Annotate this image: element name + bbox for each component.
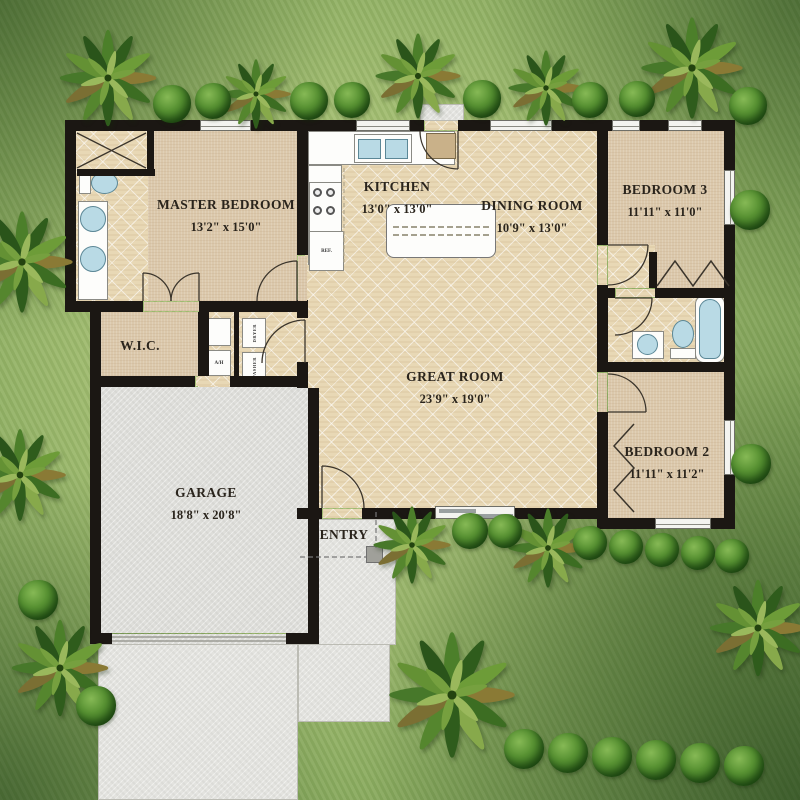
- window-icon: [668, 120, 702, 131]
- wall-segment: [147, 131, 154, 176]
- door-opening: [144, 302, 199, 311]
- wall-segment: [198, 312, 209, 376]
- wall-segment: [297, 508, 322, 519]
- bush-icon: [334, 82, 370, 118]
- palm-tree-icon: [0, 428, 68, 523]
- burner: [313, 188, 322, 197]
- room-dims: 13'2" x 15'0": [157, 216, 295, 238]
- wall-segment: [724, 475, 735, 529]
- wall-segment: [640, 120, 668, 131]
- bush-icon: [573, 526, 607, 560]
- wall-segment: [234, 312, 239, 376]
- wall-segment: [597, 298, 608, 372]
- garage-door-opening: [112, 634, 286, 644]
- bush-icon: [76, 686, 116, 726]
- bush-icon: [195, 83, 231, 119]
- entry-mat: [426, 133, 456, 159]
- wall-segment: [597, 288, 615, 298]
- bush-icon: [463, 80, 501, 118]
- wall-segment: [655, 288, 735, 298]
- utility-box: [207, 318, 231, 346]
- door-opening: [616, 289, 655, 297]
- room-dims: 13'0" x 13'0": [362, 198, 433, 220]
- air-handler-label: A/H: [215, 361, 224, 366]
- bush-icon: [592, 737, 632, 777]
- door-opening: [598, 246, 607, 285]
- palm-tree-icon: [220, 58, 292, 130]
- sink-basin: [385, 139, 408, 159]
- vanity-sink-icon: [80, 246, 106, 272]
- vanity-sink-icon: [80, 206, 106, 232]
- driveway: [98, 644, 298, 800]
- door-opening: [196, 377, 230, 386]
- bush-icon: [18, 580, 58, 620]
- wall-segment: [297, 120, 308, 255]
- palm-tree-icon: [0, 210, 75, 315]
- door-opening: [323, 509, 362, 518]
- bush-icon: [619, 81, 655, 117]
- refrigerator-icon: REF.: [309, 231, 344, 271]
- site-plan: REF. DW A/H DRYER WASHER: [0, 0, 800, 800]
- palm-tree-icon: [708, 578, 800, 678]
- bush-icon: [548, 733, 588, 773]
- bush-icon: [452, 513, 488, 549]
- door-opening: [598, 373, 607, 412]
- room-name: KITCHEN: [362, 176, 433, 198]
- wall-segment: [597, 362, 735, 372]
- palm-tree-icon: [372, 505, 452, 585]
- door-opening: [298, 256, 307, 301]
- wall-segment: [597, 412, 608, 529]
- garage-label: GARAGE 18'8" x 20'8": [171, 482, 242, 526]
- window-icon: [612, 120, 640, 131]
- room-name: BEDROOM 2: [625, 441, 710, 463]
- wall-segment: [724, 120, 735, 170]
- burner: [313, 206, 322, 215]
- wall-segment: [77, 169, 155, 176]
- wall-segment: [597, 518, 655, 529]
- entry-label: ENTRY: [320, 524, 369, 546]
- bedroom2-label: BEDROOM 2 11'11" x 11'2": [625, 441, 710, 485]
- room-name: DINING ROOM: [481, 195, 583, 217]
- bush-icon: [729, 87, 767, 125]
- bush-icon: [680, 743, 720, 783]
- burner: [326, 206, 335, 215]
- wall-segment: [297, 300, 308, 318]
- wall-segment: [90, 387, 101, 644]
- wall-segment: [199, 301, 297, 312]
- wall-segment: [649, 252, 657, 288]
- air-handler: A/H: [207, 350, 231, 376]
- bush-icon: [488, 514, 522, 548]
- bush-icon: [681, 536, 715, 570]
- room-name: GARAGE: [171, 482, 242, 504]
- bedroom3-label: BEDROOM 3 11'11" x 11'0": [623, 179, 708, 223]
- bush-icon: [731, 444, 771, 484]
- wic-label: W.I.C.: [120, 335, 160, 357]
- wall-segment: [724, 225, 735, 420]
- bush-icon: [645, 533, 679, 567]
- palm-tree-icon: [374, 32, 462, 120]
- wall-segment: [90, 376, 195, 387]
- kitchen-label: KITCHEN 13'0" x 13'0": [362, 176, 433, 220]
- room-name: GREAT ROOM: [406, 366, 504, 388]
- bush-icon: [730, 190, 770, 230]
- wall-segment: [65, 301, 143, 312]
- master-bedroom-label: MASTER BEDROOM 13'2" x 15'0": [157, 194, 295, 238]
- wall-segment: [597, 120, 608, 245]
- room-dims: 10'9" x 13'0": [481, 217, 583, 239]
- room-name: MASTER BEDROOM: [157, 194, 295, 216]
- bush-icon: [724, 746, 764, 786]
- bush-icon: [504, 729, 544, 769]
- burner: [326, 188, 335, 197]
- room-name: BEDROOM 3: [623, 179, 708, 201]
- room-name: ENTRY: [320, 524, 369, 546]
- wall-segment: [410, 120, 424, 131]
- palm-tree-icon: [387, 630, 517, 760]
- dryer-icon: DRYER: [242, 318, 266, 348]
- room-dims: 11'11" x 11'0": [623, 201, 708, 223]
- great-room-label: GREAT ROOM 23'9" x 19'0": [406, 366, 504, 410]
- window-icon: [356, 120, 410, 131]
- wall-segment: [458, 120, 490, 131]
- door-opening: [425, 121, 458, 130]
- great-room-floor: [305, 131, 597, 508]
- bush-icon: [636, 740, 676, 780]
- bush-icon: [572, 82, 608, 118]
- vanity-sink-icon: [637, 334, 658, 355]
- window-icon: [655, 518, 711, 529]
- dryer-label: DRYER: [252, 324, 257, 342]
- bush-icon: [290, 82, 328, 120]
- wall-segment: [286, 633, 319, 644]
- walkway: [298, 644, 390, 722]
- dining-room-label: DINING ROOM 10'9" x 13'0": [481, 195, 583, 239]
- wing-hall-floor: [608, 245, 655, 288]
- bush-icon: [153, 85, 191, 123]
- palm-tree-icon: [507, 49, 585, 127]
- toilet-tank: [670, 348, 696, 359]
- room-name: W.I.C.: [120, 335, 160, 357]
- bathtub-basin: [699, 299, 721, 359]
- room-dims: 11'11" x 11'2": [625, 463, 710, 485]
- wall-segment: [230, 376, 308, 387]
- room-dims: 23'9" x 19'0": [406, 388, 504, 410]
- toilet-icon: [672, 320, 694, 348]
- bush-icon: [715, 539, 749, 573]
- palm-tree-icon: [58, 28, 158, 128]
- refrigerator-label: REF.: [321, 249, 332, 254]
- room-dims: 18'8" x 20'8": [171, 504, 242, 526]
- sink-basin: [358, 139, 381, 159]
- bush-icon: [609, 530, 643, 564]
